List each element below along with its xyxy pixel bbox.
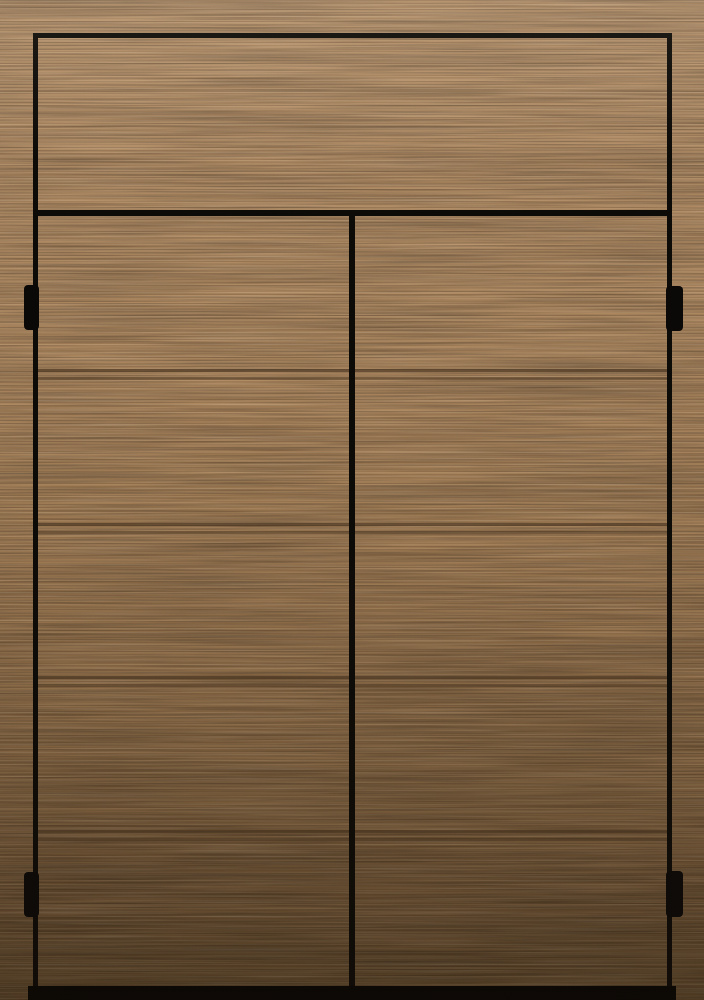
groove-line (38, 523, 668, 526)
wood-grain-dark (0, 0, 704, 1000)
groove-line (38, 531, 668, 534)
wood-band-texture (0, 0, 704, 1000)
hinges (24, 285, 683, 917)
outline-right (667, 33, 672, 993)
fine-grain-lines (0, 0, 704, 1000)
hinge-top-left (24, 285, 39, 330)
transom-divider-line (33, 210, 672, 216)
groove-line (38, 676, 668, 679)
outline-top (33, 33, 672, 38)
structure-layer (0, 0, 704, 1000)
hinge-bottom-left (24, 872, 39, 917)
hinge-top-right (666, 286, 683, 331)
hinge-bottom-right (666, 871, 683, 917)
groove-line (38, 830, 668, 833)
outline-left (33, 33, 38, 993)
lighting-vignette (0, 0, 704, 1000)
groove-line (38, 684, 668, 687)
center-door-gap-line (349, 210, 355, 993)
wood-surface (0, 0, 704, 1000)
panel-outlines (33, 33, 672, 993)
groove-line (38, 377, 668, 380)
door-grooves (38, 369, 668, 841)
groove-line (38, 369, 668, 372)
wood-base-layer (0, 0, 704, 1000)
wood-grain-light (0, 0, 704, 1000)
wardrobe-photo (0, 0, 704, 1000)
bottom-floor-gap (28, 986, 676, 1000)
groove-line (38, 838, 668, 841)
